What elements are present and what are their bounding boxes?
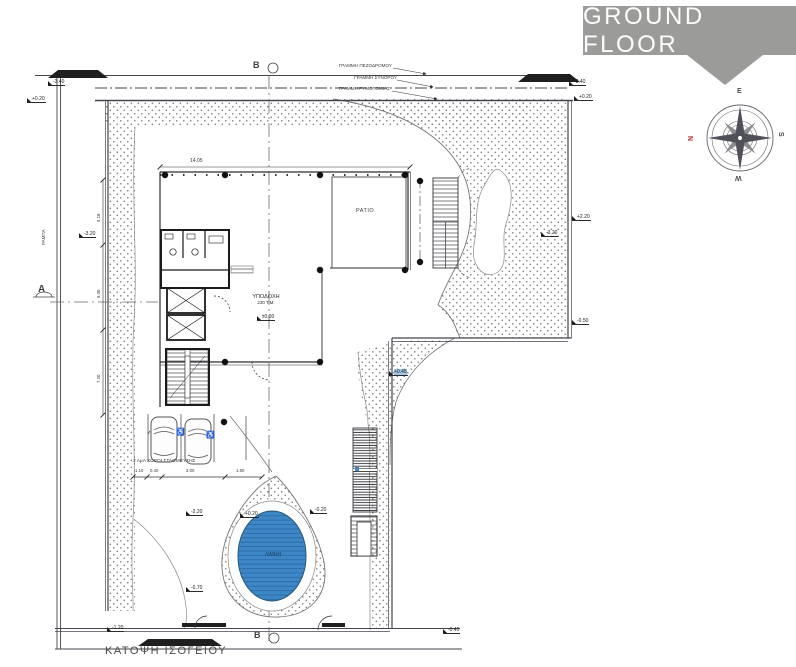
compass-north: N — [688, 136, 695, 141]
spot-level: -2.20 — [186, 510, 203, 516]
compass-south: S — [777, 132, 784, 137]
stair-left-flight — [167, 350, 185, 404]
basement-ramp — [351, 428, 377, 556]
sink — [187, 234, 195, 239]
counter — [209, 236, 223, 243]
spot-level: -0.20 — [310, 508, 327, 514]
spot-level: -3.20 — [79, 232, 96, 238]
spot-level: -1.20 — [107, 626, 124, 632]
section-a: A — [38, 284, 45, 295]
dim-left-3: 7.20 — [97, 375, 102, 383]
car-2 — [182, 419, 214, 464]
patio-enclosure — [332, 177, 406, 268]
compass-east: E — [737, 88, 742, 95]
label-pedestrian-line: ΓΡΑΜΜΗ ΠΕΖΟΔΡΟΜΟΥ — [292, 63, 392, 68]
spot-level: +0.20 — [240, 512, 259, 518]
compass-west: W — [735, 174, 742, 181]
dim-parking-1: 1.10 — [135, 469, 143, 474]
section-b-bottom-bubble — [269, 633, 279, 643]
car-1 — [148, 417, 180, 462]
label-alignment-line: ΓΡΑΜΜΗ ΡΥΜΟΤΟΜΙΑΣ — [290, 86, 390, 91]
spot-level: -0.70 — [186, 586, 203, 592]
spot-level: -0.50 — [572, 319, 589, 325]
plan-title: ΚΑΤΟΨΗ ΙΣΟΓΕΙΟΥ — [105, 645, 227, 657]
sink — [165, 234, 173, 239]
section-b-top-bubble — [268, 63, 278, 73]
spot-level: +0.20 — [574, 95, 593, 101]
label-ramp: ΡΑΜΠΑ — [41, 229, 46, 245]
compass-rose — [695, 95, 785, 185]
label-border-line: ΓΡΑΜΜΗ ΣΥΝΟΡΟΥ — [297, 75, 397, 80]
reception-area: 230 Τ.Μ. — [236, 300, 296, 305]
label-parking: 2 ΑμΑ ΧΩΡΟΙ ΣΤΑΘΜΕΥΣΗΣ — [133, 459, 196, 465]
leader-lines — [392, 68, 437, 99]
dim-parking-2: 0.40 — [150, 469, 158, 474]
spot-level: +0.20 — [27, 97, 46, 103]
dim-left-2: 6.30 — [97, 290, 102, 298]
drawing-sheet: E N S W GROUND FLOOR ΓΡΑΜΜΗ ΠΕΖΟΔΡΟΜΟΥ Γ… — [0, 0, 796, 667]
spot-level: +2.20 — [572, 215, 591, 221]
dim-parking-3: 3.00 — [186, 469, 194, 474]
spot-level: -3.20 — [541, 231, 558, 237]
spot-level: +0.45 — [389, 370, 408, 376]
spot-level: -0.45 — [443, 628, 460, 634]
wc-fixture — [170, 249, 176, 255]
spot-level: -3.40 — [569, 80, 586, 86]
section-b-top: B — [253, 60, 260, 70]
site-plan-svg — [0, 0, 796, 667]
stair-right-flight — [190, 350, 208, 404]
dim-building-width: 14.05 — [190, 159, 203, 165]
accessible-parking-icon: ♿ — [206, 431, 215, 439]
wc-fixture — [192, 249, 198, 255]
accessible-parking-icon: ♿ — [176, 428, 185, 436]
entrance-mat — [231, 266, 253, 273]
reception-level: ±0.00 — [257, 315, 275, 321]
spot-level: -3.40 — [48, 80, 65, 86]
dim-left-1: 9.18 — [97, 214, 102, 222]
label-patio: PATIO — [356, 208, 374, 214]
label-pool: ΛΙΜΝΗ — [254, 552, 292, 558]
ground-floor-banner: GROUND FLOOR — [583, 6, 796, 55]
dim-parking-4: 1.80 — [236, 469, 244, 474]
page-title: GROUND FLOOR — [583, 3, 782, 59]
reception-label: ΥΠΟΔΟΧΗ 230 Τ.Μ. ±0.00 — [236, 294, 296, 323]
section-b-bottom: B — [254, 630, 261, 640]
